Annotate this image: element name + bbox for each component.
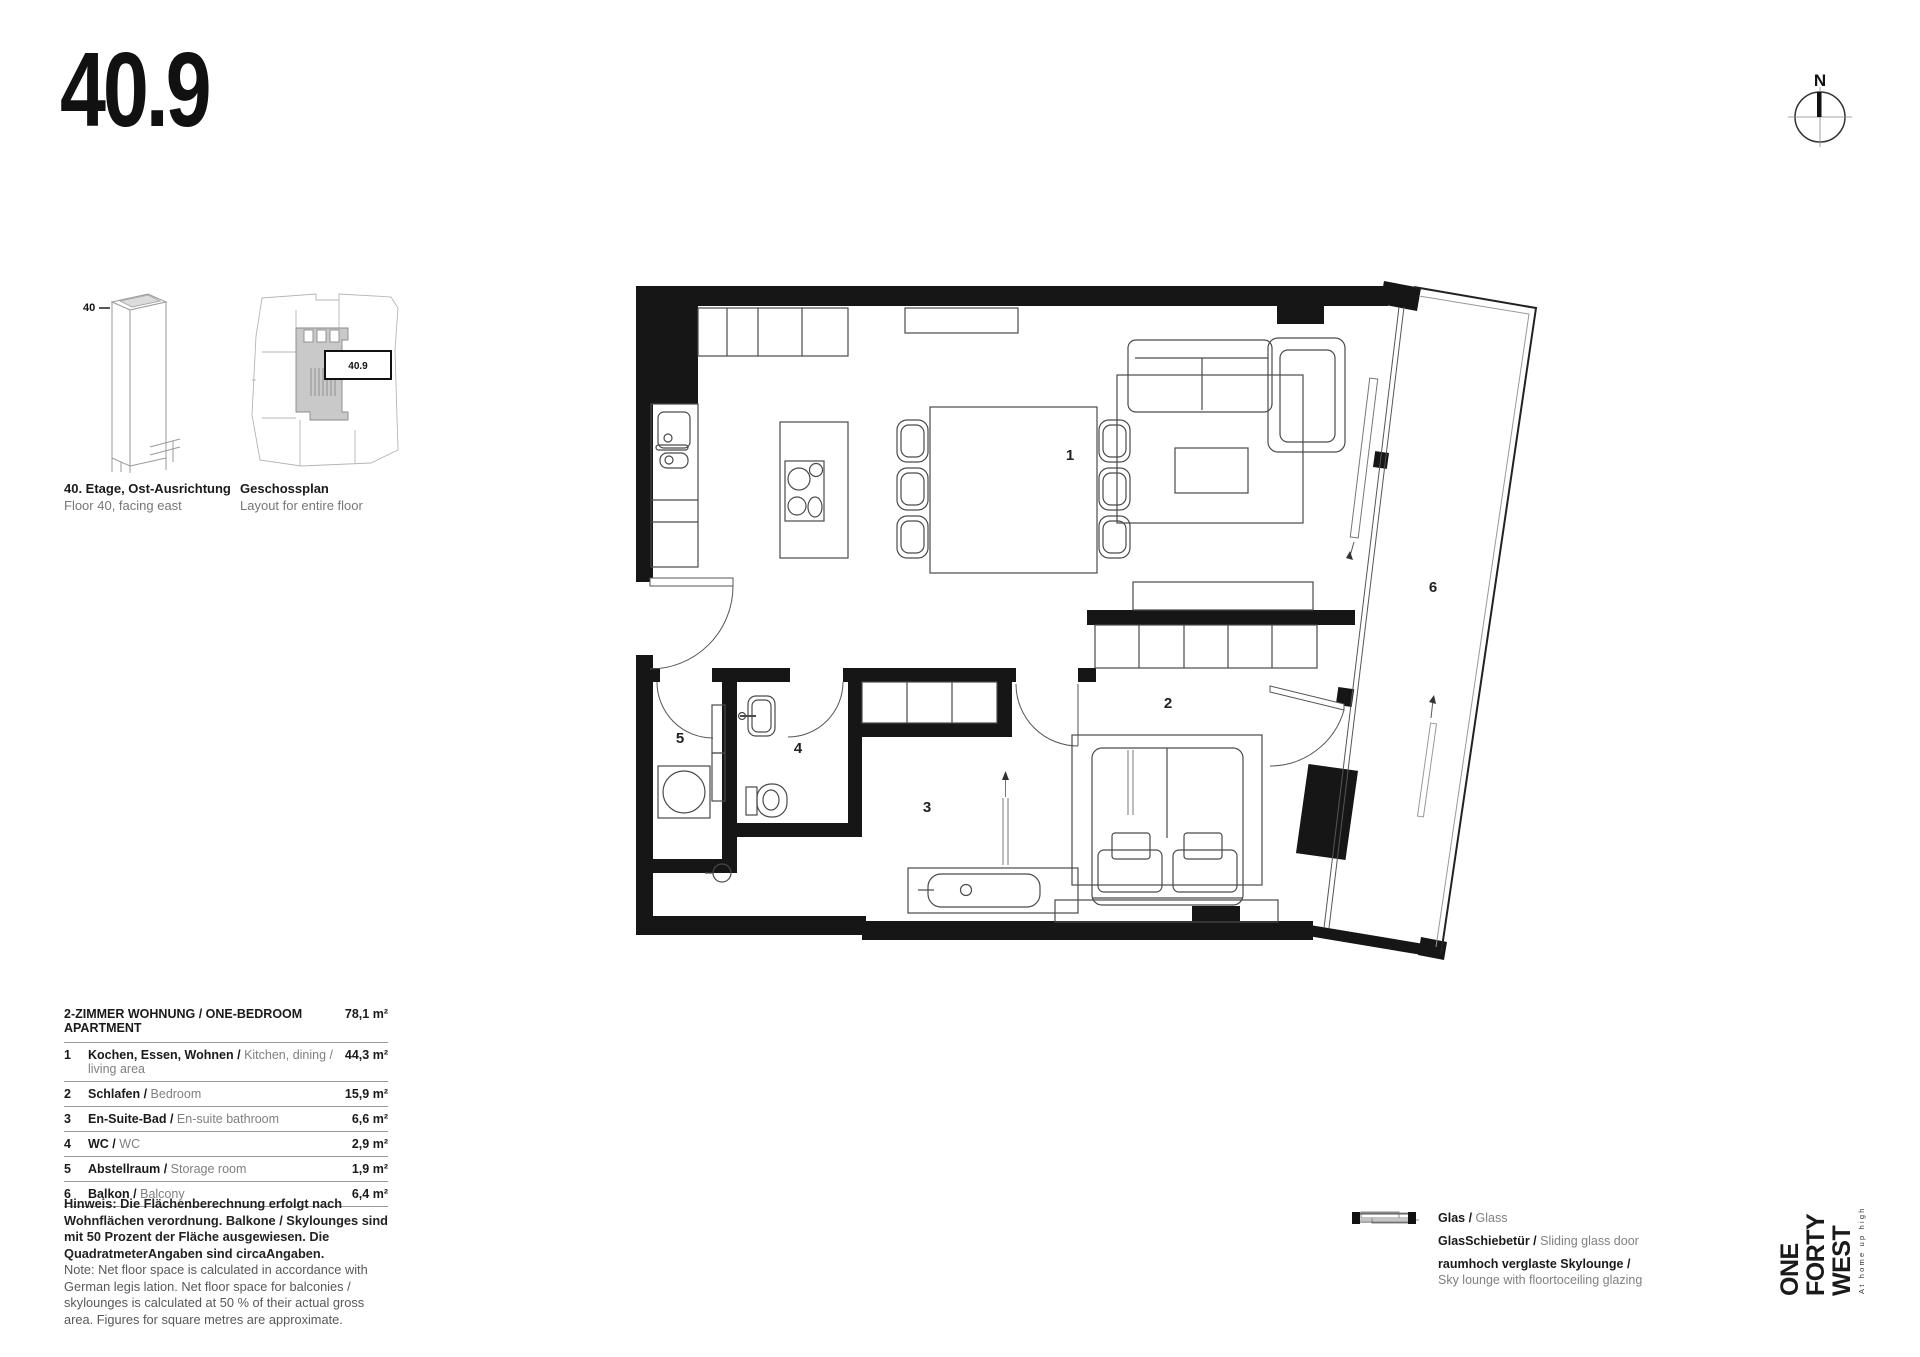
table-row: 3 En-Suite-Bad / En-suite bathroom 6,6 m… bbox=[64, 1106, 388, 1131]
balcony-door-swing bbox=[1270, 710, 1344, 766]
legend-row-sliding-door: GlasSchiebetür / Sliding glass door bbox=[1352, 1233, 1642, 1249]
tower-caption-de: 40. Etage, Ost-Ausrichtung bbox=[64, 480, 231, 497]
compass-north-needle bbox=[1817, 92, 1822, 117]
room-label-wc: 4 bbox=[794, 740, 803, 757]
row-name-en: En-suite bathroom bbox=[177, 1112, 279, 1126]
row-num: 5 bbox=[64, 1162, 88, 1176]
area-table: 2-ZIMMER WOHNUNG / ONE-BEDROOM APARTMENT… bbox=[64, 1004, 388, 1207]
logo-word-one: ONE bbox=[1776, 1243, 1804, 1296]
row-num: 1 bbox=[64, 1048, 88, 1062]
plan-walls bbox=[636, 281, 1447, 960]
row-num: 4 bbox=[64, 1137, 88, 1151]
row-area: 1,9 m² bbox=[352, 1162, 388, 1176]
row-area: 6,6 m² bbox=[352, 1112, 388, 1126]
dining-table bbox=[930, 407, 1097, 573]
entry-door-swing bbox=[650, 586, 733, 669]
bath-closet bbox=[862, 682, 997, 723]
sideboard bbox=[905, 308, 1018, 333]
balcony-glass-panel bbox=[1417, 723, 1436, 817]
table-row: 2 Schlafen / Bedroom 15,9 m² bbox=[64, 1081, 388, 1106]
pillow bbox=[1173, 850, 1237, 892]
row-name-de: Schlafen / bbox=[88, 1087, 147, 1101]
bed-bench bbox=[1055, 900, 1278, 922]
shower-glass bbox=[1002, 771, 1009, 865]
floorplate-unit-label: 40.9 bbox=[348, 361, 368, 372]
note-en: Note: Net floor space is calculated in a… bbox=[64, 1262, 394, 1328]
kitchen-island bbox=[780, 422, 848, 558]
storage-door-swing bbox=[657, 682, 713, 738]
legend-skylounge-en: Sky lounge with floortoceiling glazing bbox=[1438, 1272, 1642, 1288]
bedroom-door-swing bbox=[1016, 684, 1078, 746]
bathtub bbox=[908, 868, 1078, 913]
balcony bbox=[1324, 287, 1536, 954]
bedroom-glass-partition bbox=[1128, 750, 1133, 815]
kitchen-faucet bbox=[660, 453, 688, 468]
toilet bbox=[746, 784, 787, 817]
legend-skylounge-de: raumhoch verglaste Skylounge / bbox=[1438, 1256, 1642, 1272]
floorplate-caption-de: Geschossplan bbox=[240, 480, 363, 497]
kitchen-upper-cabinets bbox=[698, 308, 848, 356]
row-name-en: Bedroom bbox=[151, 1087, 202, 1101]
floorplate-caption: Geschossplan Layout for entire floor bbox=[240, 480, 363, 514]
legend-sliding-en: Sliding glass door bbox=[1540, 1234, 1639, 1248]
logo-word-forty: FORTY bbox=[1802, 1213, 1830, 1296]
apartment-type-label: 2-ZIMMER WOHNUNG / ONE-BEDROOM APARTMENT bbox=[64, 1007, 345, 1035]
brand-logo: ONE FORTY WEST At home up high bbox=[1776, 1206, 1866, 1296]
logo-tagline: At home up high bbox=[1857, 1206, 1866, 1294]
balcony-pillar bbox=[1296, 764, 1358, 860]
row-name-de: Kochen, Essen, Wohnen / bbox=[88, 1048, 241, 1062]
row-num: 3 bbox=[64, 1112, 88, 1126]
floorplate-thumbnail: 40.9 bbox=[252, 294, 398, 466]
table-row: 1 Kochen, Essen, Wohnen / Kitchen, dinin… bbox=[64, 1042, 388, 1081]
row-name-de: WC / bbox=[88, 1137, 116, 1151]
table-row: 4 WC / WC 2,9 m² bbox=[64, 1131, 388, 1156]
room-label-balcony: 6 bbox=[1429, 579, 1437, 596]
floorplate-caption-en: Layout for entire floor bbox=[240, 497, 363, 514]
kitchen-sink bbox=[658, 412, 690, 448]
row-num: 2 bbox=[64, 1087, 88, 1101]
floorplan-sheet: 40.9 N 40 bbox=[0, 0, 1920, 1357]
bed bbox=[1092, 748, 1243, 905]
row-name-en: Storage room bbox=[171, 1162, 247, 1176]
table-row: 5 Abstellraum / Storage room 1,9 m² bbox=[64, 1156, 388, 1181]
wardrobe bbox=[1095, 625, 1317, 668]
legend-sliding-de: GlasSchiebetür / bbox=[1438, 1234, 1537, 1248]
sofa bbox=[1128, 338, 1345, 452]
skylounge-symbol-icon bbox=[1352, 1256, 1438, 1258]
washing-machine bbox=[658, 766, 710, 818]
logo-word-west: WEST bbox=[1828, 1226, 1856, 1296]
room-label-storage: 5 bbox=[676, 730, 684, 747]
tower-floor-label: 40 bbox=[83, 302, 95, 314]
tower-caption-en: Floor 40, facing east bbox=[64, 497, 231, 514]
area-table-header: 2-ZIMMER WOHNUNG / ONE-BEDROOM APARTMENT… bbox=[64, 1004, 388, 1042]
coffee-table bbox=[1175, 448, 1248, 493]
note-de: Hinweis: Die Flächenberechnung erfolgt n… bbox=[64, 1196, 394, 1262]
legend: Glas / Glass GlasSchiebetür / Sliding gl… bbox=[1352, 1210, 1642, 1295]
wc-door-swing bbox=[788, 682, 843, 737]
legend-row-skylounge: raumhoch verglaste Skylounge / Sky loung… bbox=[1352, 1256, 1642, 1288]
tv-sideboard bbox=[1133, 582, 1313, 610]
wc-sink bbox=[739, 696, 776, 736]
sliding-door-symbol-icon bbox=[1352, 1233, 1438, 1235]
note-block: Hinweis: Die Flächenberechnung erfolgt n… bbox=[64, 1196, 394, 1328]
row-area: 2,9 m² bbox=[352, 1137, 388, 1151]
room-label-bedroom: 2 bbox=[1164, 695, 1172, 712]
row-name-en: WC bbox=[119, 1137, 140, 1151]
balcony-door-leaf bbox=[1270, 686, 1344, 710]
tower-thumbnail: 40 bbox=[83, 294, 180, 473]
row-name-de: Abstellraum / bbox=[88, 1162, 167, 1176]
legend-glass-en: Glass bbox=[1476, 1211, 1508, 1225]
room-label-living: 1 bbox=[1066, 447, 1074, 464]
entry-door-leaf bbox=[650, 578, 733, 586]
tower-caption: 40. Etage, Ost-Ausrichtung Floor 40, fac… bbox=[64, 480, 231, 514]
apartment-total-area: 78,1 m² bbox=[345, 1007, 388, 1021]
living-rug bbox=[1117, 375, 1303, 523]
legend-glass-de: Glas / bbox=[1438, 1211, 1472, 1225]
room-labels: 1 2 3 4 5 6 bbox=[676, 447, 1437, 816]
row-area: 15,9 m² bbox=[345, 1087, 388, 1101]
pillow bbox=[1098, 850, 1162, 892]
dining-chairs bbox=[897, 420, 1130, 558]
row-name-de: En-Suite-Bad / bbox=[88, 1112, 173, 1126]
room-label-ensuite: 3 bbox=[923, 799, 931, 816]
kitchen-counter bbox=[651, 404, 698, 567]
row-area: 44,3 m² bbox=[345, 1048, 388, 1062]
compass: N bbox=[1788, 71, 1852, 147]
